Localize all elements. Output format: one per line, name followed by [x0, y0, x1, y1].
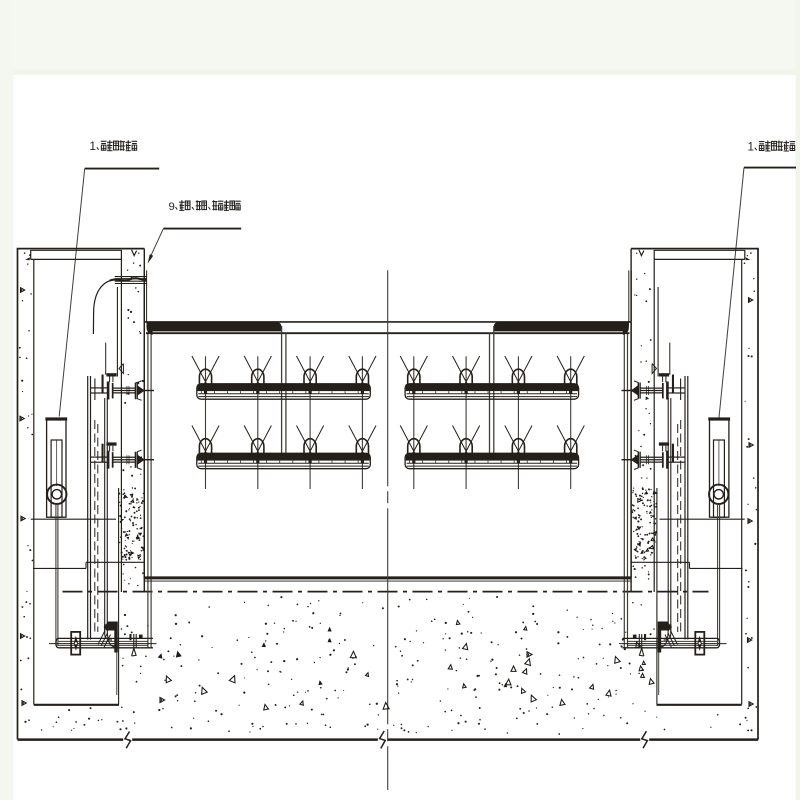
svg-text:1: 1 — [748, 140, 754, 153]
svg-text:1: 1 — [90, 140, 96, 153]
svg-text:9: 9 — [169, 201, 175, 213]
